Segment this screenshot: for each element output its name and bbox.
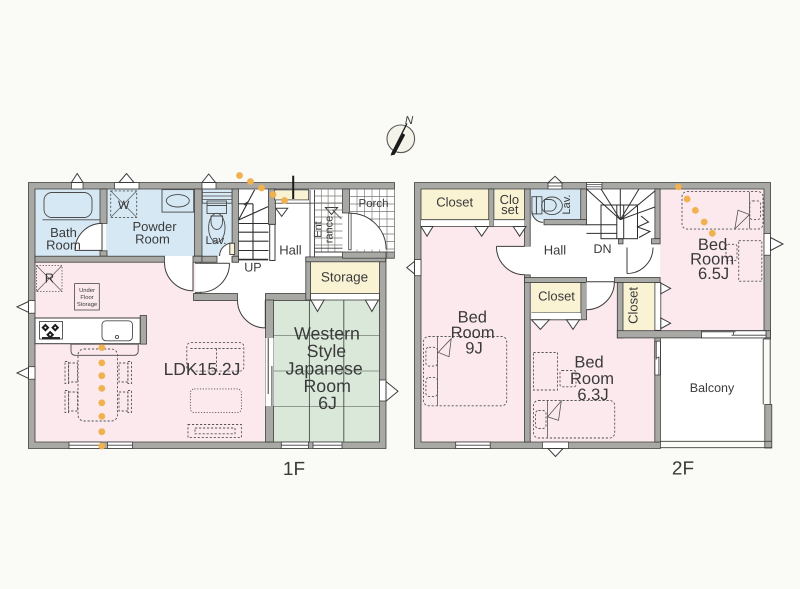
- svg-text:Closet: Closet: [626, 287, 641, 324]
- svg-text:9J: 9J: [465, 340, 482, 358]
- svg-text:Lav.: Lav.: [206, 235, 227, 247]
- svg-text:N: N: [405, 115, 414, 127]
- svg-text:6.5J: 6.5J: [698, 265, 729, 283]
- svg-text:Hall: Hall: [544, 243, 567, 258]
- svg-text:R: R: [45, 271, 54, 286]
- svg-text:Room: Room: [46, 237, 81, 252]
- svg-text:set: set: [501, 202, 519, 217]
- svg-text:6J: 6J: [318, 393, 337, 413]
- svg-text:Balcony: Balcony: [690, 381, 735, 395]
- svg-text:UP: UP: [244, 261, 261, 275]
- svg-text:6.3J: 6.3J: [577, 386, 608, 404]
- svg-text:Bed: Bed: [574, 354, 603, 372]
- svg-text:Room: Room: [135, 232, 170, 247]
- svg-text:Under: Under: [79, 287, 95, 294]
- svg-text:rance: rance: [324, 216, 336, 244]
- svg-text:2F: 2F: [672, 459, 694, 480]
- svg-text:Floor: Floor: [80, 294, 93, 301]
- svg-text:Porch: Porch: [358, 198, 388, 210]
- svg-text:Storage: Storage: [321, 270, 368, 285]
- svg-text:Closet: Closet: [538, 288, 575, 303]
- svg-text:Hall: Hall: [279, 243, 302, 258]
- svg-text:Closet: Closet: [436, 194, 473, 209]
- svg-text:Lav.: Lav.: [561, 195, 573, 215]
- svg-text:Storage: Storage: [77, 301, 97, 308]
- svg-text:W: W: [118, 198, 130, 212]
- svg-text:DN: DN: [593, 242, 611, 256]
- svg-text:1F: 1F: [283, 459, 305, 480]
- svg-text:LDK15.2J: LDK15.2J: [164, 359, 241, 379]
